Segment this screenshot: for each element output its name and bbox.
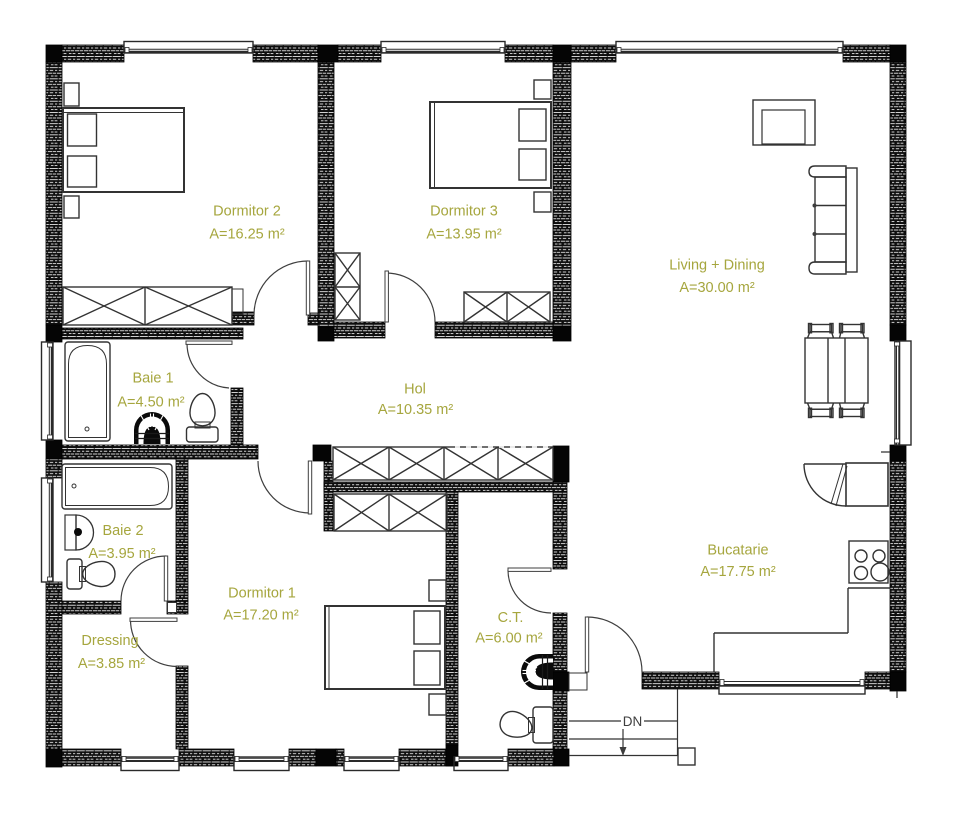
svg-text:DN: DN [623,714,643,729]
svg-text:A=17.75 m²: A=17.75 m² [700,564,776,580]
svg-text:Dressing: Dressing [81,633,138,649]
svg-text:A=3.95 m²: A=3.95 m² [88,546,155,562]
svg-text:A=17.20 m²: A=17.20 m² [223,608,299,624]
svg-text:A=30.00 m²: A=30.00 m² [679,280,755,296]
svg-text:Baie 1: Baie 1 [132,371,173,387]
svg-text:A=10.35 m²: A=10.35 m² [378,402,454,418]
svg-text:A=13.95 m²: A=13.95 m² [426,227,502,243]
svg-text:Dormitor 3: Dormitor 3 [430,204,498,220]
svg-text:Hol: Hol [404,382,426,398]
svg-text:A=16.25 m²: A=16.25 m² [209,227,285,243]
svg-text:Living + Dining: Living + Dining [669,258,765,274]
svg-text:A=3.85 m²: A=3.85 m² [78,656,145,672]
svg-text:Dormitor 2: Dormitor 2 [213,204,281,220]
svg-text:Bucatarie: Bucatarie [707,543,768,559]
svg-text:Baie 2: Baie 2 [102,523,143,539]
svg-text:C.T.: C.T. [498,610,524,626]
svg-text:A=6.00 m²: A=6.00 m² [475,631,542,647]
svg-text:Dormitor 1: Dormitor 1 [228,586,296,602]
svg-text:A=4.50 m²: A=4.50 m² [117,395,184,411]
